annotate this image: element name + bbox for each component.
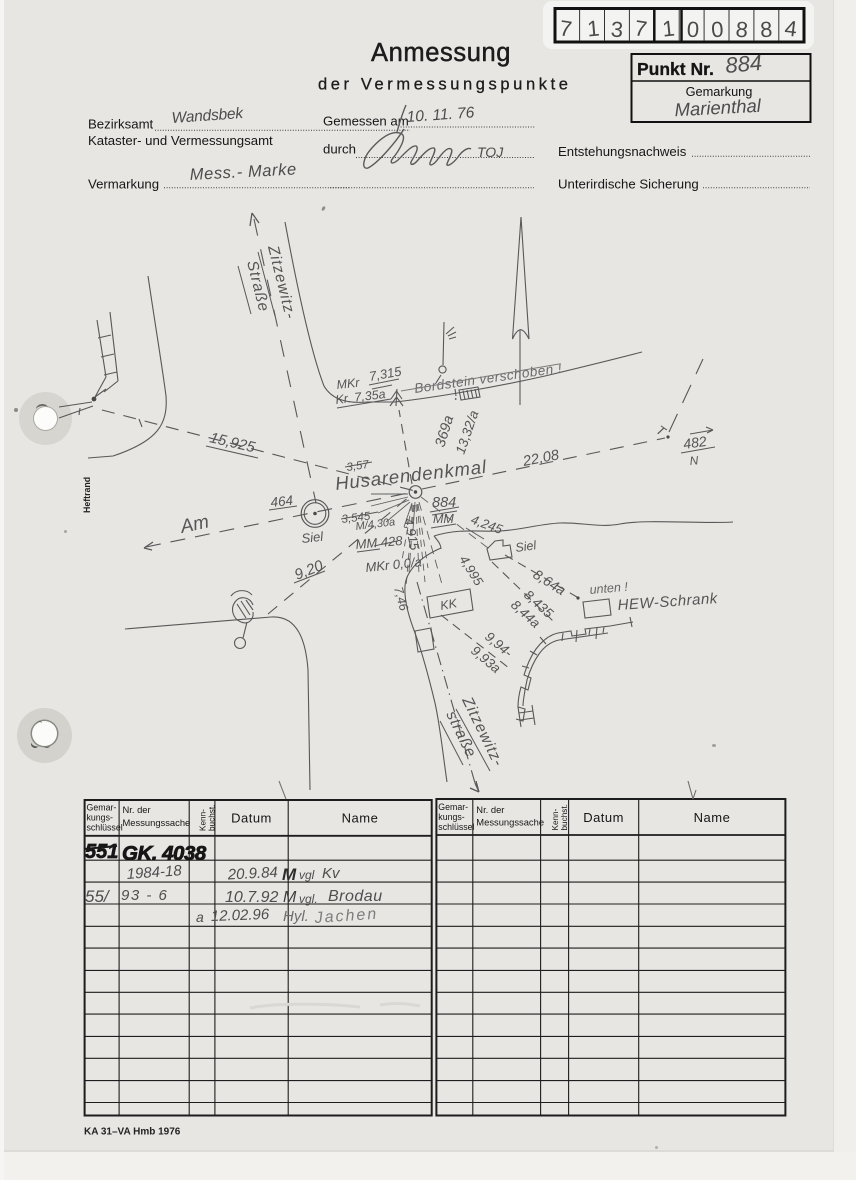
svg-text:7,315: 7,315 — [368, 363, 403, 384]
svg-text:22,08: 22,08 — [521, 447, 561, 470]
svg-text:Heftrand: Heftrand — [82, 477, 92, 513]
svg-text:7,46: 7,46 — [391, 585, 411, 612]
svg-text:Bordstein verschoben !: Bordstein verschoben ! — [413, 360, 563, 396]
svg-text:Straße: Straße — [243, 259, 272, 314]
svg-text:Siel: Siel — [301, 529, 325, 546]
svg-text:482: 482 — [682, 433, 708, 452]
svg-text:HEW-Schrank: HEW-Schrank — [617, 590, 719, 614]
svg-text:unten !: unten ! — [589, 580, 629, 597]
svg-text:369a: 369a — [433, 414, 458, 450]
svg-text:MKr 0,0/a: MKr 0,0/a — [365, 554, 423, 575]
svg-text:KK: KK — [439, 596, 459, 613]
svg-text:Siel: Siel — [514, 538, 538, 555]
svg-text:4,915: 4,915 — [401, 517, 423, 553]
svg-text:4,995: 4,995 — [456, 553, 486, 589]
svg-text:N: N — [689, 453, 699, 468]
svg-text:13,32/a: 13,32/a — [453, 408, 482, 456]
